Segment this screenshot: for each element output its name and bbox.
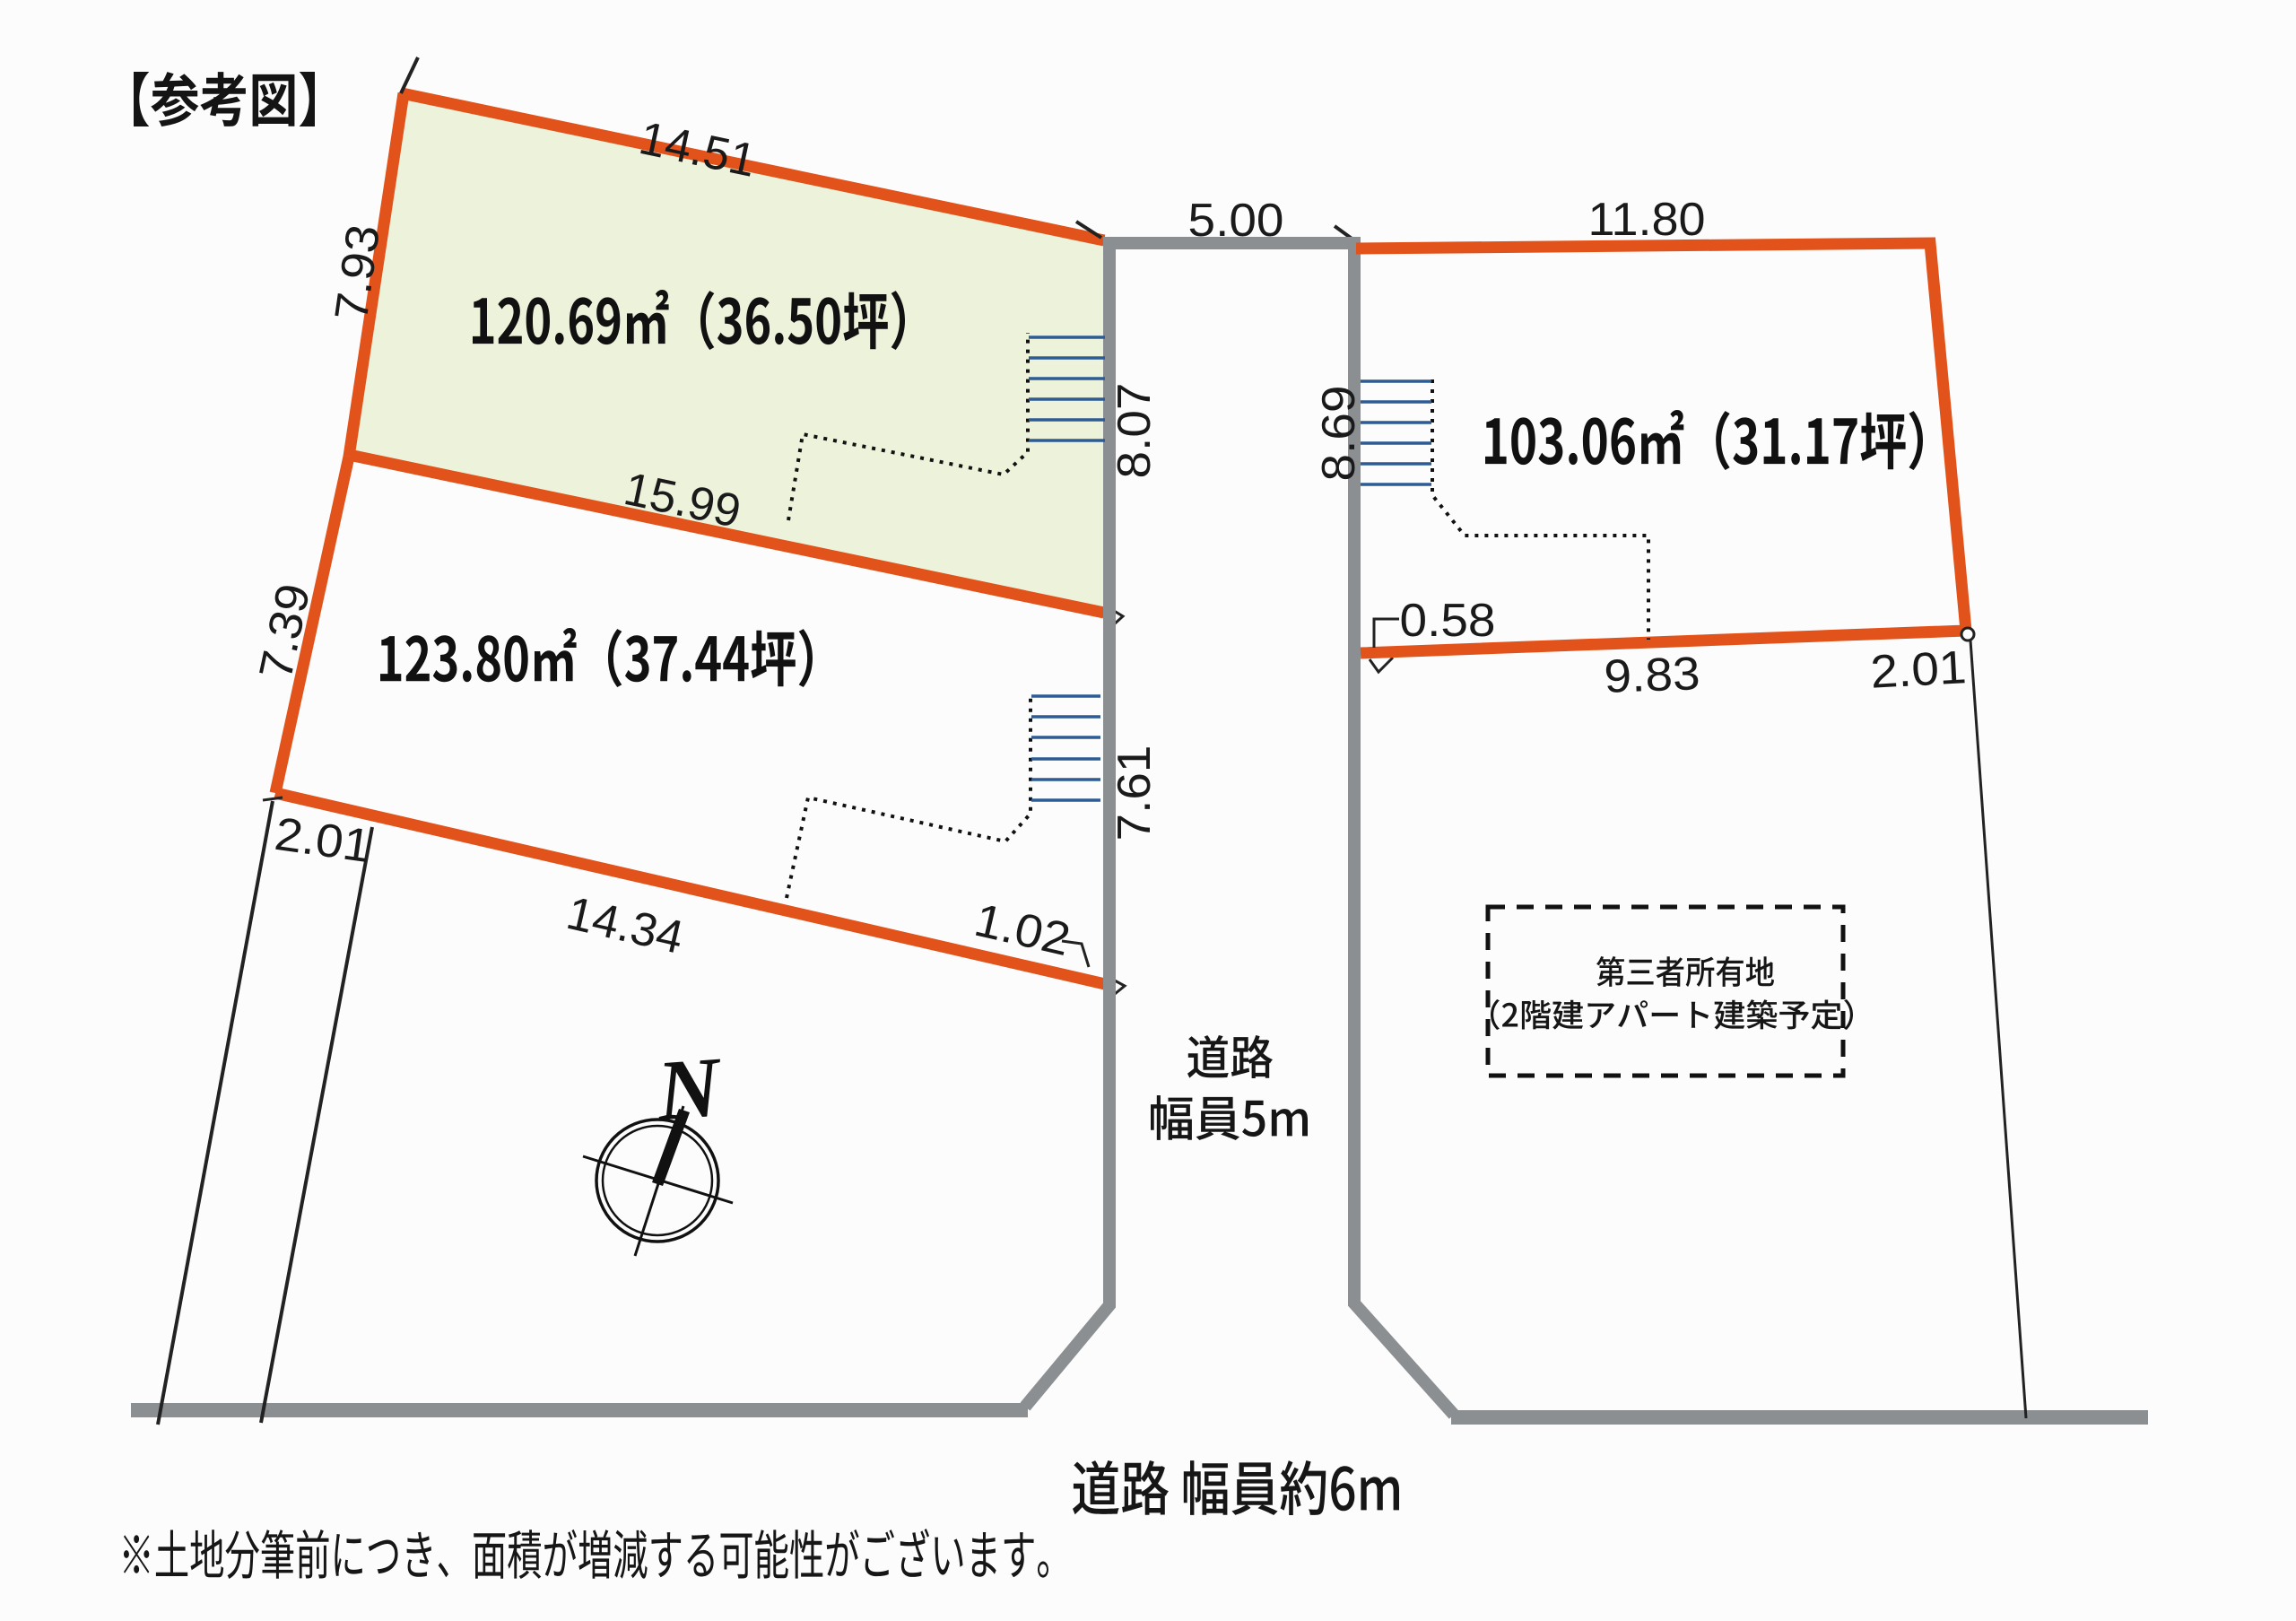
svg-text:8.07: 8.07 xyxy=(1109,383,1161,479)
svg-text:8.69: 8.69 xyxy=(1313,386,1365,482)
svg-text:N: N xyxy=(653,1039,726,1139)
svg-text:11.80: 11.80 xyxy=(1588,194,1706,246)
svg-text:7.61: 7.61 xyxy=(1109,745,1161,841)
svg-text:5.00: 5.00 xyxy=(1188,195,1284,247)
svg-text:0.58: 0.58 xyxy=(1400,595,1496,647)
svg-text:2.01: 2.01 xyxy=(1869,641,1968,699)
svg-text:9.83: 9.83 xyxy=(1604,648,1701,703)
